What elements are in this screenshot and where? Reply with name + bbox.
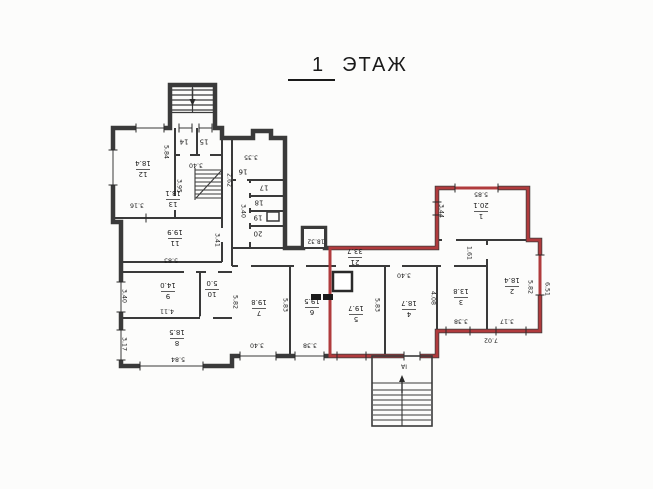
room-label-2: 2 18.4 [504,276,520,295]
dim-room3-bottom: 3.38 [454,318,468,325]
svg-text:12: 12 [139,170,148,178]
outer-walls [113,85,540,366]
dim-room9-bottom: 4.11 [160,308,174,315]
svg-text:13.8: 13.8 [453,287,469,295]
svg-text:5.0: 5.0 [206,279,217,287]
room-label-5: 5 19.7 [348,304,364,323]
svg-text:19.7: 19.7 [348,304,364,312]
dim-room6-side: 5.83 [282,298,289,312]
svg-text:18.5: 18.5 [169,328,185,336]
svg-text:20.1: 20.1 [473,201,489,209]
dim-room6-bottom: 3.38 [303,342,317,349]
dim-block-height: 2.62 [226,173,233,187]
room-label-9: 9 14.0 [160,281,176,300]
svg-text:9: 9 [166,292,170,300]
svg-text:7: 7 [257,309,261,317]
room-label-16: 16 [238,168,247,176]
svg-text:19.9: 19.9 [167,228,183,236]
dim-room11-bottom: 5.83 [164,257,178,264]
room-label-3: 3 13.8 [453,287,469,306]
svg-text:6: 6 [309,308,314,316]
svg-text:3: 3 [459,298,463,306]
stair-arrow-up [399,375,405,382]
room-label-18: 18 [255,199,264,207]
svg-text:18.4: 18.4 [135,159,151,167]
room-label-11: 11 19.9 [167,228,183,247]
svg-text:4: 4 [406,310,411,318]
svg-text:18.4: 18.4 [504,276,520,284]
dim-block-lower-height: 3.40 [240,204,247,218]
dim-room13-top: 3.40 [189,162,203,169]
room-label-1: 1 20.1 [473,201,489,220]
svg-text:14.0: 14.0 [160,281,176,289]
dim-outer-bottom: 7.02 [484,337,498,344]
dim-room11-side: 3.41 [214,233,221,247]
vent-shaft-corridor [333,272,352,291]
vent-block-right [323,294,333,300]
svg-text:33.7: 33.7 [347,247,363,255]
room-label-20: 20 [254,230,263,238]
room-label-8: 8 18.5 [169,328,185,347]
staircase-room13 [195,168,222,200]
svg-text:2: 2 [510,287,514,295]
room-label-17: 17 [260,184,269,192]
room-label-14: 14 [179,138,188,146]
dim-room8-side: 3.17 [121,337,128,351]
floor-plan-canvas: 1 20.1 2 18.4 3 13.8 4 18.7 5 [0,0,653,489]
shaft-area-label: 18.32 [307,238,324,245]
dim-corridor-wall: 1.61 [466,246,473,260]
room-label-19: 19 [254,214,263,222]
room-label-15: 15 [200,138,209,146]
room-label-4: 4 18.7 [401,299,417,318]
dim-room8-bottom: 5.84 [171,356,185,363]
svg-text:13: 13 [169,200,178,208]
svg-text:18.7: 18.7 [401,299,417,307]
dim-room5-side: 5.83 [374,298,381,312]
room-label-21: 21 33.7 [347,247,363,266]
shaft-room19 [267,212,279,221]
svg-text:1: 1 [479,212,483,220]
svg-text:19.8: 19.8 [251,298,267,306]
porch-label: ІА [400,363,407,370]
svg-text:8: 8 [175,339,179,347]
room-label-7: 7 19.8 [251,298,267,317]
room-label-10: 10 5.0 [205,279,219,298]
room-label-12: 12 18.4 [135,159,151,178]
dim-room12-bottom: 3.16 [130,202,144,209]
dim-room12-width: 5.84 [163,145,170,159]
dim-room2-side: 5.82 [527,280,534,294]
staircase-top [170,85,215,113]
svg-text:19.5: 19.5 [304,297,320,305]
dim-room2-bottom: 3.17 [500,318,514,325]
dim-room1-top: 5.85 [474,191,488,198]
dim-room1-side: 3.44 [438,204,445,218]
dim-room4-top: 3.40 [397,272,411,279]
svg-text:5: 5 [354,315,358,323]
dim-outer-right: 6.51 [544,282,551,296]
svg-text:10: 10 [208,290,217,298]
svg-text:21: 21 [351,258,360,266]
room-label-6: 6 19.5 [304,297,320,316]
dim-room7-bottom: 3.40 [250,342,264,349]
dim-room9-side: 3.40 [121,289,128,303]
dim-room3-side: 4.08 [430,291,437,305]
floor-plan-page: 1ЭТАЖ [0,0,653,489]
dim-room7-side: 5.82 [232,295,239,309]
dim-block-top: 3.35 [244,154,258,161]
dim-room13-height: 3.95 [176,179,183,193]
svg-text:11: 11 [171,239,180,247]
